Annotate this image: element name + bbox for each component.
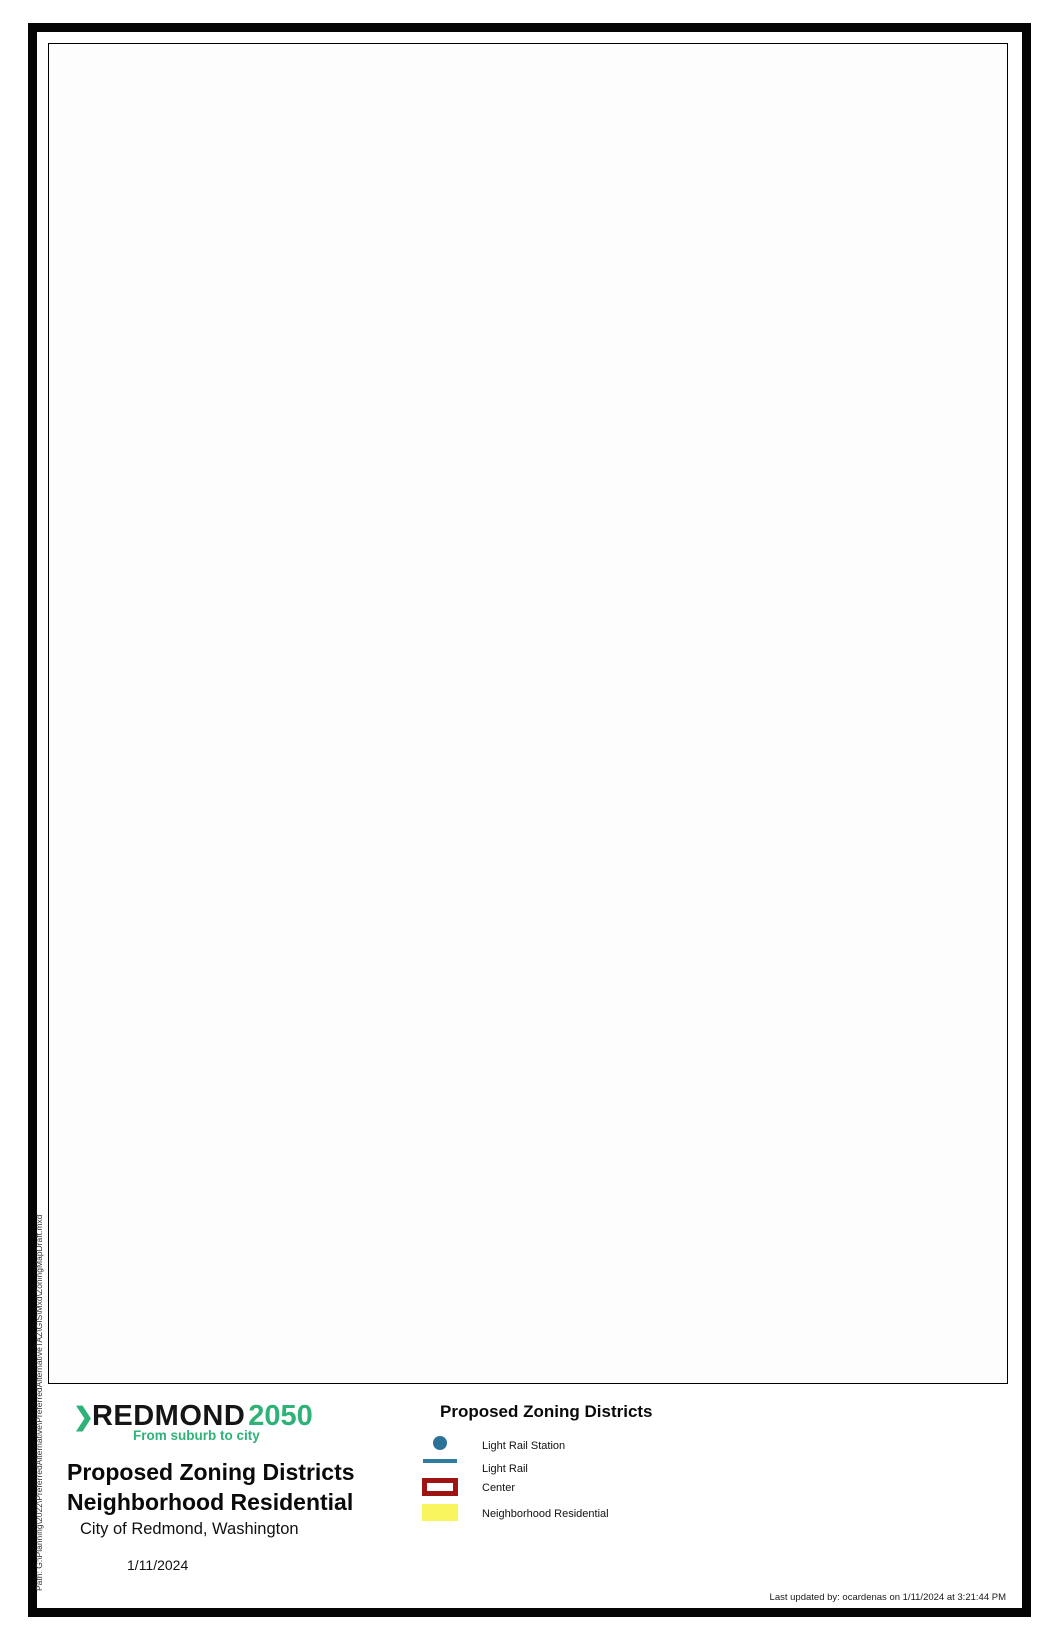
legend-header: Proposed Zoning Districts	[440, 1402, 653, 1422]
map-title-line1: Proposed Zoning Districts	[67, 1458, 355, 1488]
rail-line-icon	[422, 1459, 458, 1463]
station-dot-icon	[422, 1436, 458, 1450]
title-block: ❯REDMOND2050 From suburb to city Propose…	[48, 1384, 1008, 1583]
last-updated-label: Last updated by: ocardenas on 1/11/2024 …	[0, 1592, 1006, 1603]
map-date: 1/11/2024	[127, 1557, 188, 1573]
map-title: Proposed Zoning Districts Neighborhood R…	[67, 1458, 355, 1518]
logo-chevron-icon: ❯	[73, 1403, 92, 1431]
logo-tagline: From suburb to city	[133, 1428, 260, 1443]
legend-item-label: Center	[482, 1482, 515, 1494]
legend-item-label: Light Rail Station	[482, 1440, 565, 1452]
legend: Proposed Zoning Districts Light Rail Sta…	[378, 1384, 778, 1583]
map-document-page: 0 0.5 1 Miles N ❯REDMOND2050 From suburb…	[0, 0, 1056, 1632]
yellow-fill-icon	[422, 1504, 458, 1521]
map-title-line2: Neighborhood Residential	[67, 1488, 355, 1518]
content-frame	[48, 43, 1008, 1583]
map-subtitle: City of Redmond, Washington	[80, 1520, 299, 1539]
legend-item-label: Light Rail	[482, 1463, 528, 1475]
legend-item-label: Neighborhood Residential	[482, 1508, 609, 1520]
center-outline-icon	[422, 1478, 458, 1496]
mxd-path-label: Path: G:\Planning\2022\PreferredAlternat…	[34, 1071, 44, 1591]
